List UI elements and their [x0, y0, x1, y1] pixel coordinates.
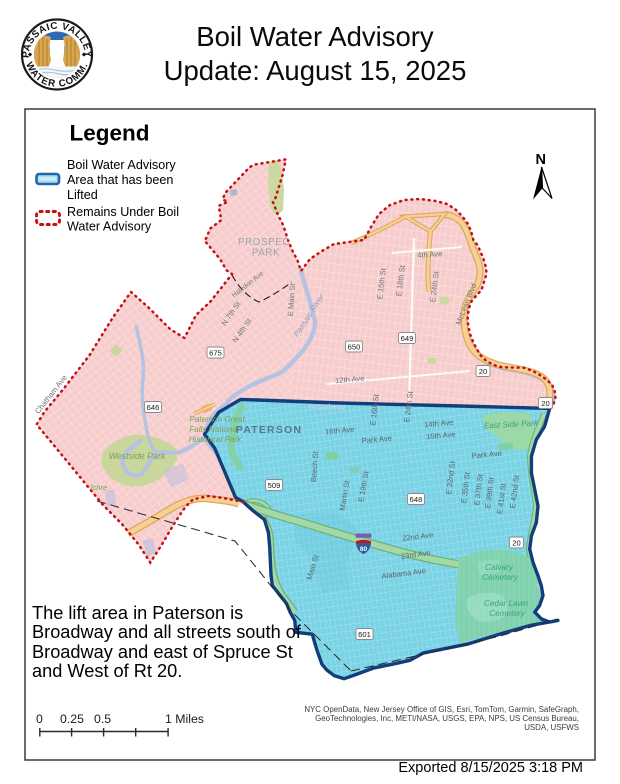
svg-text:601: 601	[358, 630, 371, 639]
svg-text:650: 650	[348, 343, 361, 352]
svg-text:PARK: PARK	[252, 248, 280, 259]
svg-text:Broadway: Broadway	[309, 402, 346, 412]
svg-text:Paterson Great: Paterson Great	[189, 415, 245, 424]
svg-text:649: 649	[401, 334, 414, 343]
svg-text:Cedar Lawn: Cedar Lawn	[484, 599, 529, 608]
svg-text:PATERSON: PATERSON	[236, 424, 302, 436]
svg-text:Westside Park: Westside Park	[109, 451, 166, 461]
svg-text:20: 20	[541, 399, 549, 408]
svg-text:Lifted: Lifted	[67, 188, 98, 202]
svg-text:Falls National: Falls National	[189, 425, 239, 434]
svg-text:lchre: lchre	[91, 483, 107, 492]
svg-text:4th Ave: 4th Ave	[417, 249, 443, 260]
svg-text:Boil Water Advisory: Boil Water Advisory	[67, 158, 176, 172]
svg-text:Cemetery: Cemetery	[482, 573, 518, 582]
svg-text:20: 20	[512, 539, 520, 548]
svg-text:N: N	[536, 152, 546, 168]
svg-text:509: 509	[268, 481, 281, 490]
svg-text:648: 648	[410, 495, 423, 504]
svg-text:Calvary: Calvary	[485, 563, 514, 572]
svg-text:Cemetery: Cemetery	[489, 609, 525, 618]
svg-text:Area that has been: Area that has been	[67, 173, 173, 187]
svg-text:675: 675	[209, 349, 222, 358]
svg-text:PROSPEC: PROSPEC	[238, 237, 290, 248]
svg-text:Legend: Legend	[70, 121, 150, 146]
svg-text:80: 80	[360, 546, 368, 553]
svg-text:Historical Park: Historical Park	[189, 435, 243, 444]
svg-text:Water Advisory: Water Advisory	[67, 219, 152, 233]
svg-text:Remains Under Boil: Remains Under Boil	[67, 205, 179, 219]
svg-text:646: 646	[147, 403, 160, 412]
svg-text:20: 20	[479, 367, 487, 376]
